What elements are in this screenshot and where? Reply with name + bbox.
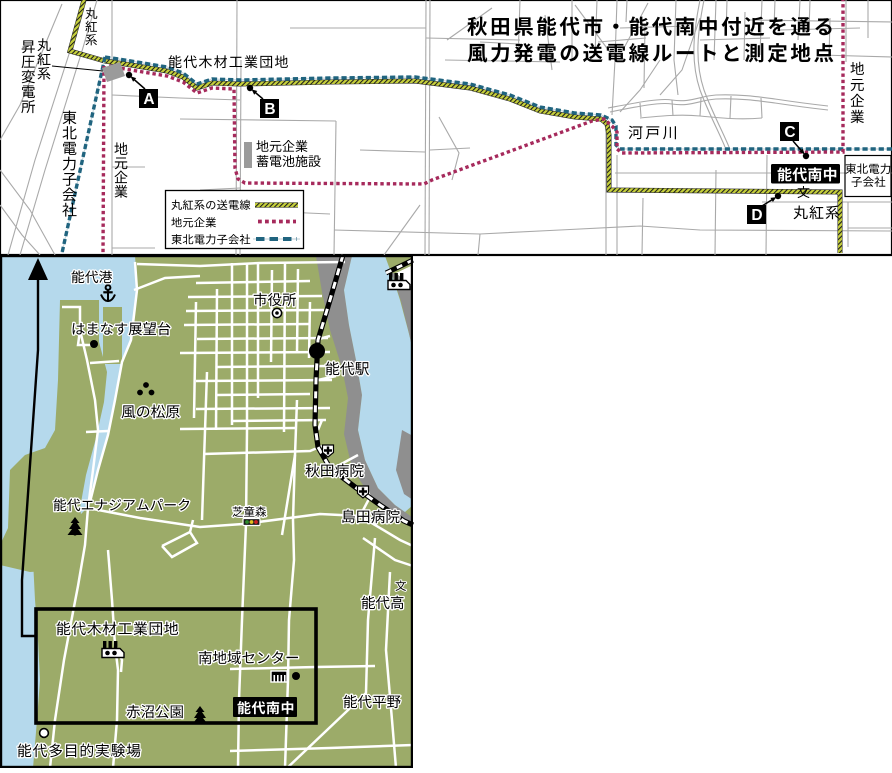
svg-text:D: D [751, 207, 762, 224]
svg-text:A: A [143, 91, 154, 108]
svg-text:B: B [264, 101, 275, 118]
svg-text:C: C [784, 124, 795, 141]
